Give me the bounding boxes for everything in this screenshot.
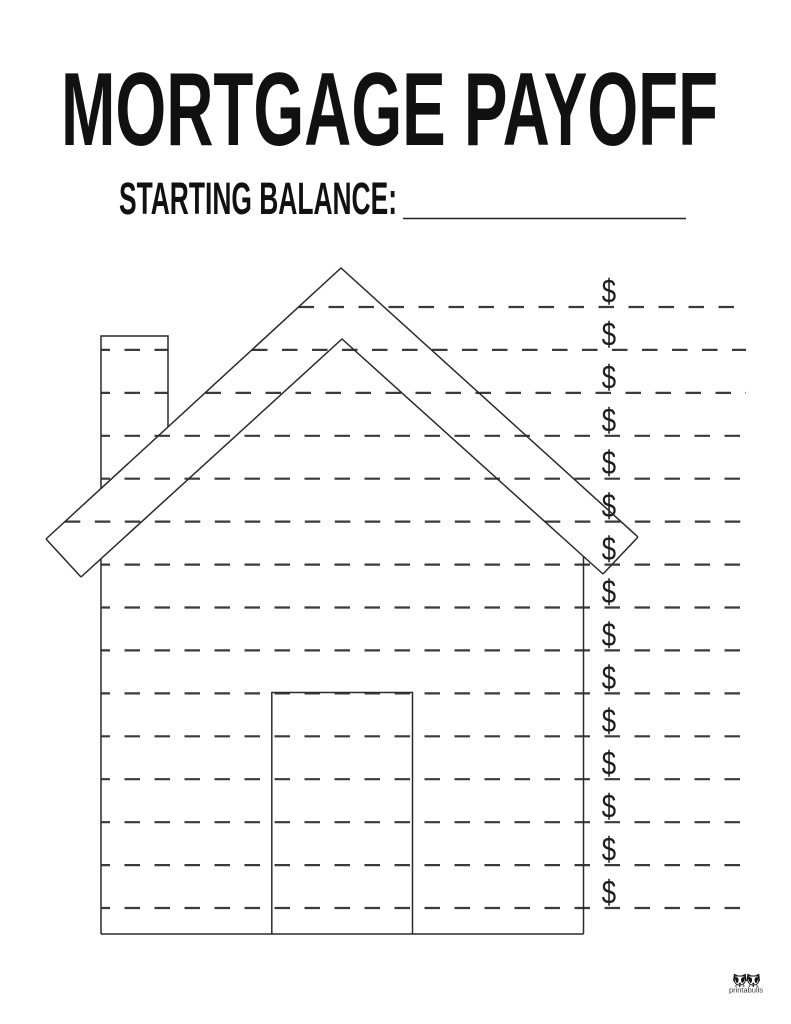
svg-text:$: $ [602,574,616,611]
svg-text:$: $ [602,703,616,740]
svg-text:$: $ [602,875,616,912]
svg-text:$: $ [602,316,616,353]
svg-text:$: $ [602,274,616,311]
svg-text:$: $ [602,445,616,482]
svg-text:printabulls: printabulls [729,986,763,995]
svg-text:$: $ [602,746,616,783]
svg-text:$: $ [602,789,616,826]
svg-text:$: $ [602,832,616,869]
svg-text:STARTING BALANCE:: STARTING BALANCE: [119,173,397,224]
svg-text:$: $ [602,359,616,396]
svg-text:MORTGAGE PAYOFF: MORTGAGE PAYOFF [61,52,718,168]
svg-text:$: $ [602,660,616,697]
svg-text:$: $ [602,617,616,654]
svg-text:$: $ [602,402,616,439]
